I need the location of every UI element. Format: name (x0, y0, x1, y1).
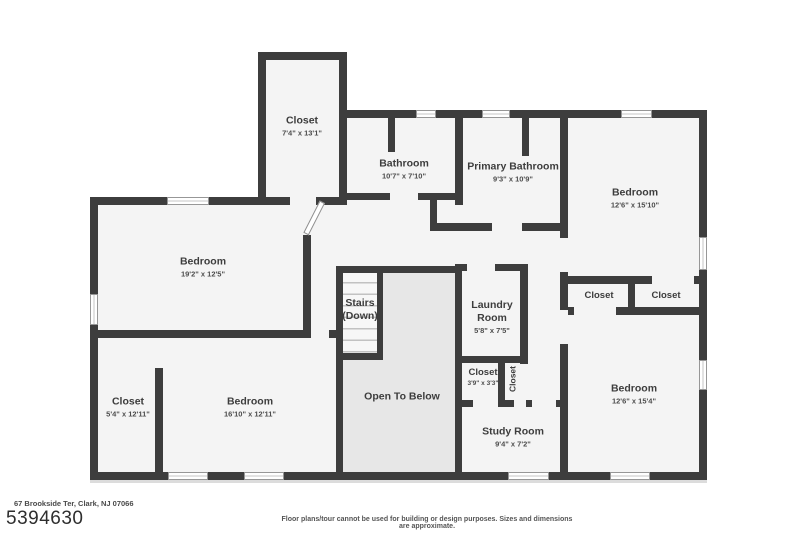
door-opening (467, 264, 495, 271)
window (610, 472, 650, 480)
room-name: Laundry Room (465, 299, 519, 325)
room-name: Bedroom (611, 382, 657, 395)
wall-hall-bedroom (303, 235, 311, 333)
room-name: Closet (584, 290, 613, 302)
room-name: Closet (508, 366, 519, 392)
window (90, 294, 98, 325)
wall-closet-small-top (455, 356, 528, 363)
wall-shadow (90, 480, 707, 483)
window (482, 110, 510, 118)
door-opening (560, 238, 568, 272)
room-dims: 9'4" x 7'2" (482, 440, 544, 449)
room-label-bedroom-tr: Bedroom 12'6" x 15'10" (611, 186, 659, 209)
wall-stairs-right (377, 266, 383, 360)
room-label-closet-b: Closet (651, 290, 680, 302)
window (167, 197, 209, 205)
room-name: Bedroom (224, 395, 276, 408)
room-label-primary-bathroom: Primary Bathroom 9'3" x 10'9" (467, 160, 559, 183)
wall-bath-divider (455, 110, 463, 205)
room-dims: 12'6" x 15'4" (611, 397, 657, 406)
wall-bath-stub (388, 110, 395, 152)
room-dims: 5'8" x 7'5" (465, 326, 519, 335)
door-opening (652, 276, 694, 284)
room-dims: 10'7" x 7'10" (379, 172, 429, 181)
wall-primary-bath-stub (522, 110, 529, 156)
room-name: Stairs (342, 297, 378, 310)
wall-closet-left (258, 52, 266, 205)
wall-mid-right (560, 110, 568, 480)
room-name: Bathroom (379, 157, 429, 170)
window (168, 472, 208, 480)
door-opening (492, 223, 522, 231)
room-label-closet-54: Closet 5'4" x 12'11" (106, 395, 150, 418)
door-opening (473, 400, 498, 407)
room-label-closet-a: Closet (584, 290, 613, 302)
room-name: Primary Bathroom (467, 160, 559, 173)
disclaimer-text: Floor plans/tour cannot be used for buil… (277, 516, 577, 530)
room-label-bedroom-br: Bedroom 12'6" x 15'4" (611, 382, 657, 405)
room-label-study: Study Room 9'4" x 7'2" (482, 425, 544, 448)
wall-bedroom-left-bottom (90, 330, 343, 338)
window (621, 110, 652, 118)
window (699, 360, 707, 390)
room-dims: 3'9" x 3'3" (468, 380, 499, 387)
door-opening (574, 307, 616, 315)
door-opening (514, 400, 526, 407)
room-label-closet-small: Closet 3'9" x 3'3" (468, 367, 499, 387)
wall-closet-top (258, 52, 347, 60)
room-label-bedroom-left: Bedroom 19'2" x 12'5" (180, 255, 226, 278)
wall-closet-right (339, 52, 347, 205)
wall-otb-top (336, 266, 462, 273)
room-name: Bedroom (611, 186, 659, 199)
room-name: Closet (106, 395, 150, 408)
room-dims: 5'4" x 12'11" (106, 410, 150, 419)
room-dims: 16'10" x 12'11" (224, 410, 276, 419)
listing-id: 5394630 (6, 508, 83, 530)
room-name: Study Room (482, 425, 544, 438)
door-opening (560, 310, 568, 344)
room-label-closet-vertical: Closet (508, 366, 519, 392)
wall-otb-right (455, 266, 462, 472)
room-name: Closet (282, 114, 322, 127)
window (508, 472, 549, 480)
door-opening (290, 197, 316, 205)
wall-exterior-left (90, 197, 98, 480)
room-dims: 9'3" x 10'9" (467, 175, 559, 184)
wall-stairs-bottom (336, 353, 383, 360)
room-label-laundry: Laundry Room 5'8" x 7'5" (465, 299, 519, 335)
room-name: Open To Below (364, 390, 440, 403)
wall-closet54-divider (155, 368, 163, 472)
wall-exterior-right (699, 110, 707, 480)
room-dims: 19'2" x 12'5" (180, 270, 226, 279)
room-label-closet-top: Closet 7'4" x 13'1" (282, 114, 322, 137)
room-name: Bedroom (180, 255, 226, 268)
room-label-bedroom-bl: Bedroom 16'10" x 12'11" (224, 395, 276, 418)
room-name: Closet (468, 367, 499, 379)
room-dims: 12'6" x 15'10" (611, 201, 659, 210)
room-label-bathroom: Bathroom 10'7" x 7'10" (379, 157, 429, 180)
property-address: 67 Brookside Ter, Clark, NJ 07066 (14, 499, 134, 508)
window (416, 110, 436, 118)
room-name: Closet (651, 290, 680, 302)
floor-plan: Closet 7'4" x 13'1" Bathroom 10'7" x 7'1… (0, 0, 800, 533)
window (244, 472, 284, 480)
room-label-stairs: Stairs (Down) (342, 297, 378, 323)
window (699, 237, 707, 270)
room-name: (Down) (342, 310, 378, 323)
wall-laundry-right (520, 264, 528, 364)
room-label-open-to-below: Open To Below (364, 390, 440, 403)
door-opening (311, 330, 329, 338)
door-opening (390, 193, 418, 200)
door-opening (532, 400, 556, 407)
room-dims: 7'4" x 13'1" (282, 129, 322, 138)
